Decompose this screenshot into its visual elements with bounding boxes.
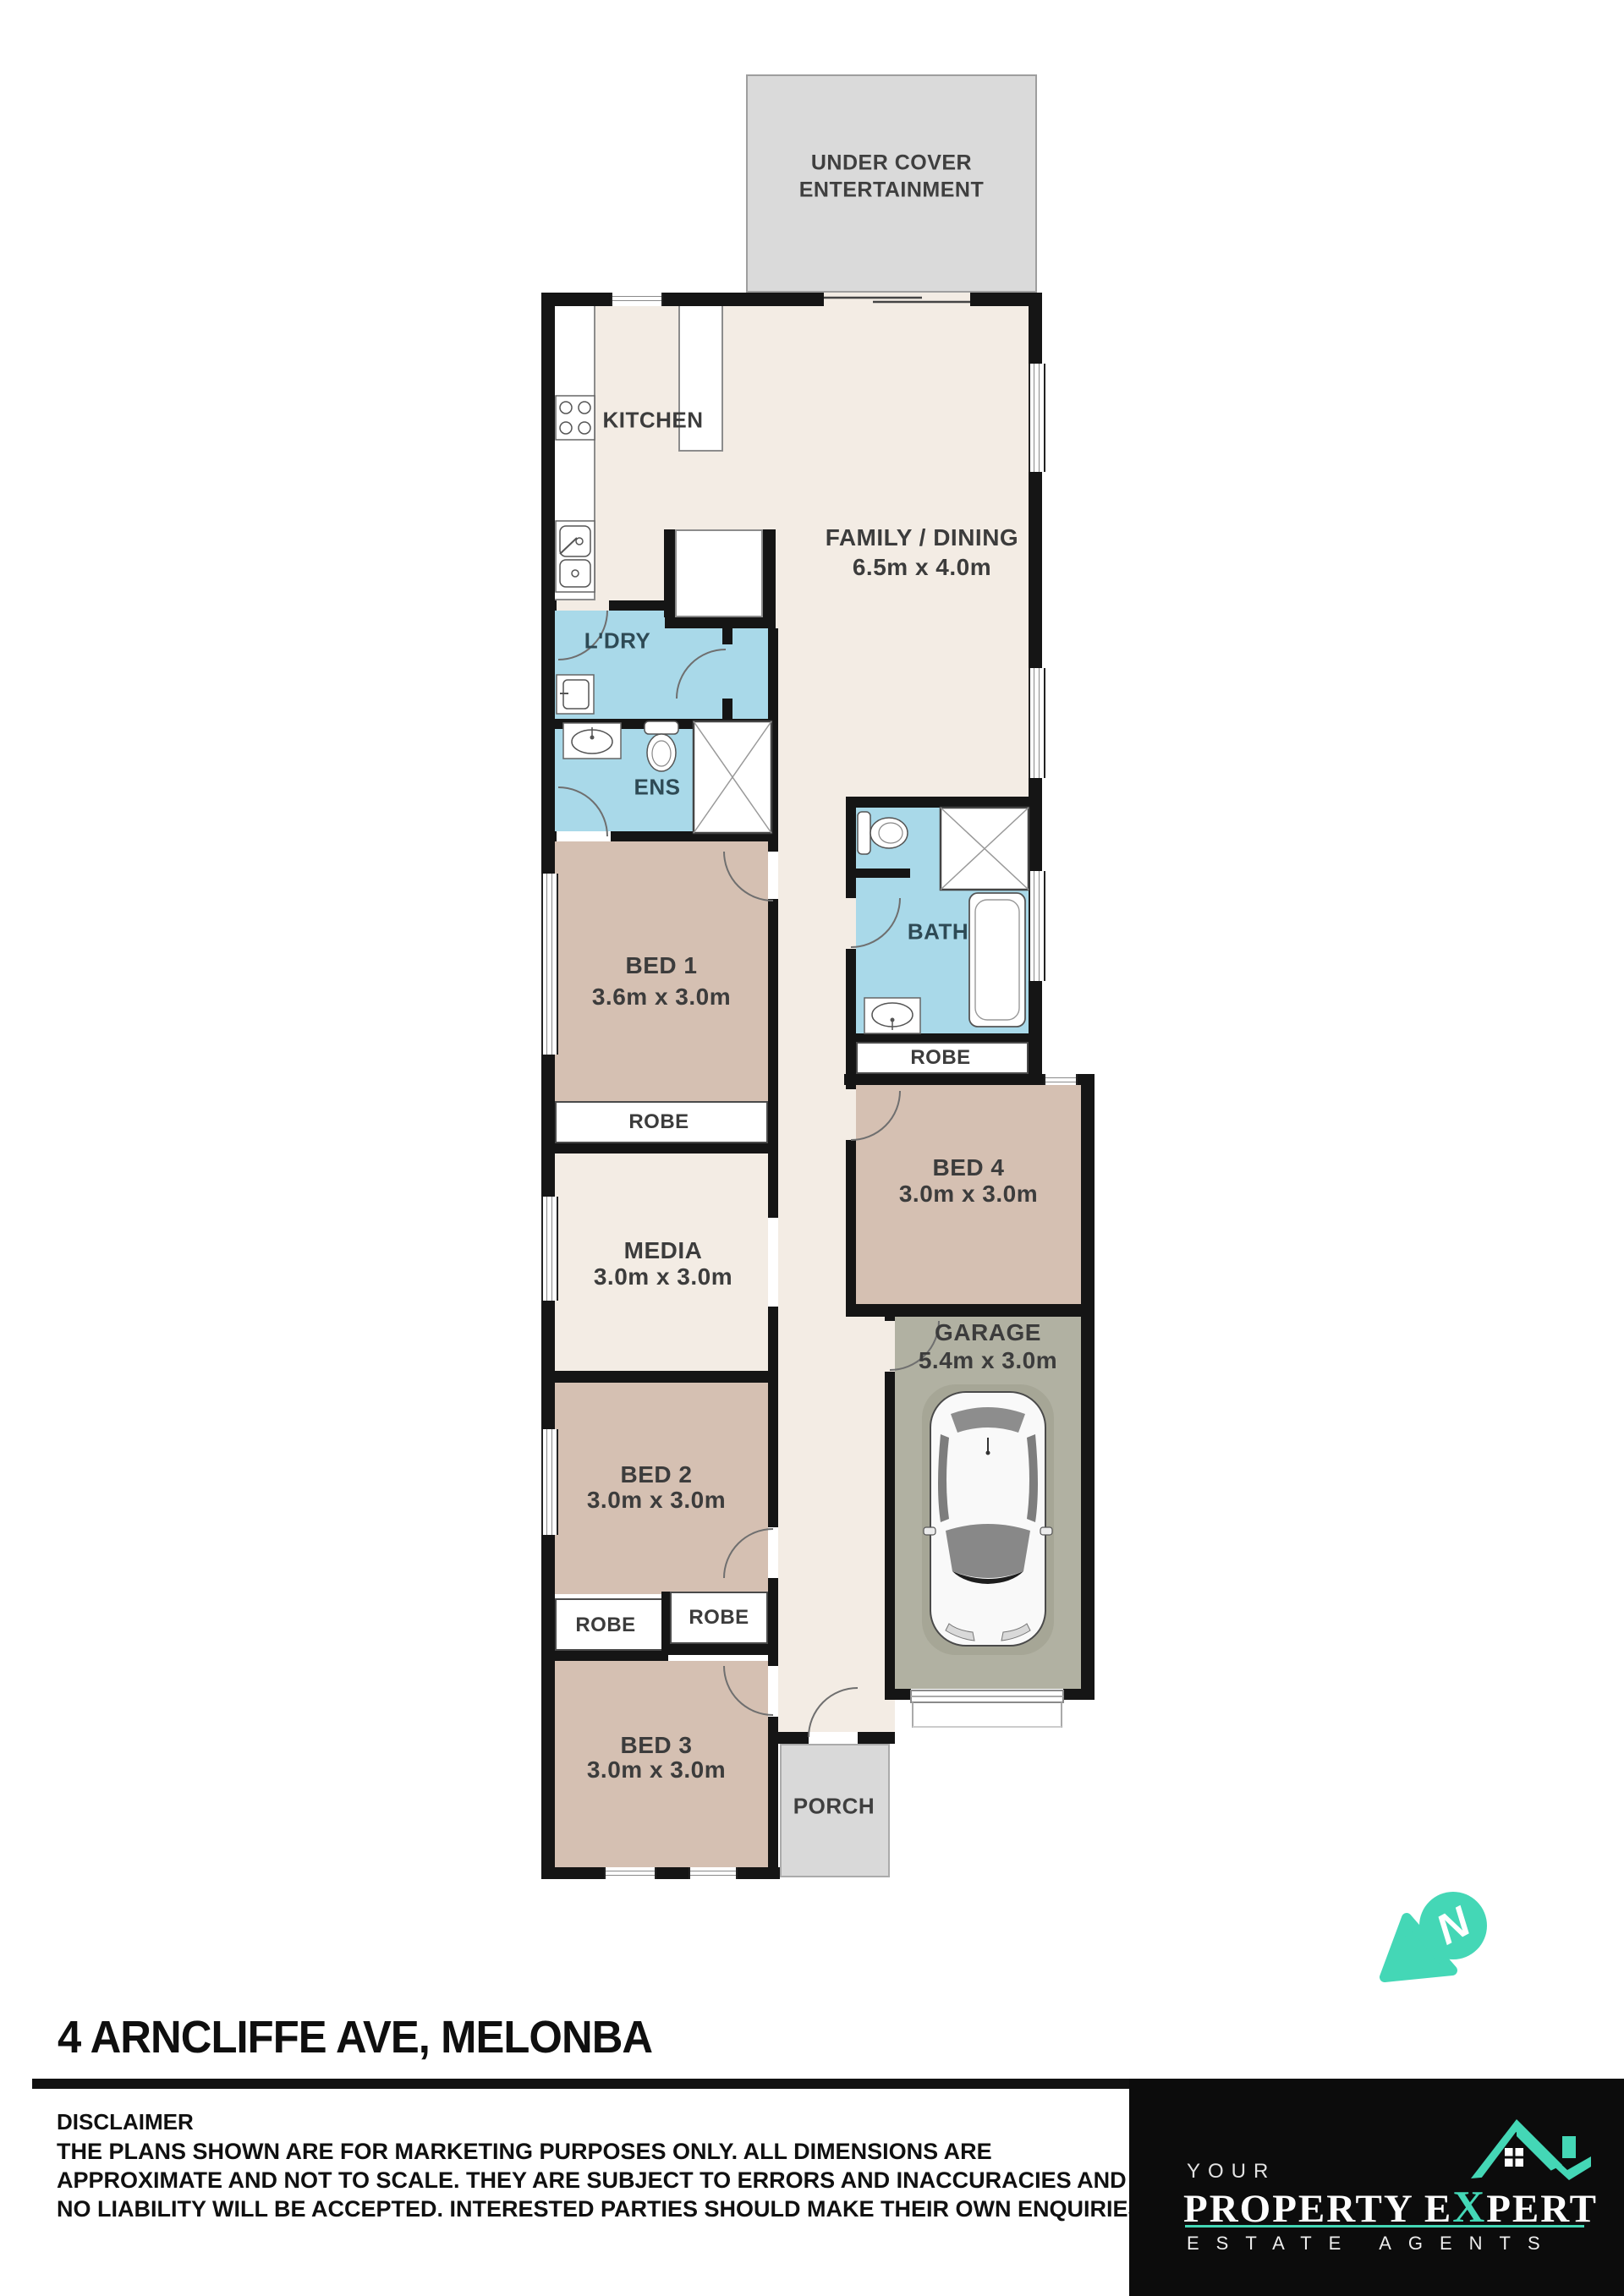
bathtub-icon <box>969 893 1025 1027</box>
ensuite-label: ENS <box>634 775 681 801</box>
bath-vanity-icon <box>864 998 920 1033</box>
address-title: 4 ARNCLIFFE AVE, MELONBA <box>58 2011 652 2063</box>
washing-machine-icon <box>557 675 594 714</box>
bed3-dims: 3.0m x 3.0m <box>587 1756 726 1784</box>
north-compass-icon: N <box>1385 1892 1487 1977</box>
ensuite-toilet-icon <box>645 721 678 771</box>
ensuite-shower-icon <box>694 721 771 833</box>
bath-label: BATH <box>908 919 968 945</box>
family-dims: 6.5m x 4.0m <box>853 554 991 581</box>
bed4-label: BED 4 <box>933 1154 1005 1181</box>
robe-bed2-left-label: ROBE <box>575 1614 635 1637</box>
bed4-dims: 3.0m x 3.0m <box>899 1181 1038 1208</box>
bed2-label: BED 2 <box>621 1461 693 1488</box>
logo-divider-line <box>1185 2225 1584 2228</box>
entertainment-label2: ENTERTAINMENT <box>799 178 985 203</box>
bath-toilet-icon <box>858 812 908 854</box>
robe-bath-label: ROBE <box>910 1046 970 1070</box>
floorplan-page: N UNDER COVER ENTERTAINMENT KITCHEN FAMI… <box>0 0 1624 2296</box>
family-label: FAMILY / DINING <box>826 524 1018 551</box>
plan-fixtures-overlay: N <box>0 0 1624 2296</box>
disclaimer-heading: DISCLAIMER <box>57 2109 194 2135</box>
robe-bed2-right-label: ROBE <box>689 1606 749 1630</box>
disclaimer-line1: THE PLANS SHOWN ARE FOR MARKETING PURPOS… <box>57 2139 992 2165</box>
double-sink-icon <box>556 521 595 592</box>
media-dims: 3.0m x 3.0m <box>594 1263 732 1290</box>
kitchen-label: KITCHEN <box>602 408 703 434</box>
robe-bed1-label: ROBE <box>628 1110 689 1134</box>
agency-logo: YOUR PROPERTY EXPERT ESTATE AGENTS <box>1129 2079 1624 2296</box>
house-roof-icon <box>1468 2111 1594 2185</box>
media-label: MEDIA <box>624 1237 703 1264</box>
disclaimer-line3: NO LIABILITY WILL BE ACCEPTED. INTERESTE… <box>57 2196 1149 2222</box>
bed1-label: BED 1 <box>626 952 698 979</box>
garage-label: GARAGE <box>935 1319 1041 1346</box>
ensuite-vanity-icon <box>563 723 621 759</box>
bed2-dims: 3.0m x 3.0m <box>587 1487 726 1514</box>
porch-label: PORCH <box>793 1794 875 1820</box>
logo-word-estate-agents: ESTATE AGENTS <box>1187 2233 1557 2255</box>
garage-dims: 5.4m x 3.0m <box>919 1347 1057 1374</box>
stove-cooktop-icon <box>556 396 595 440</box>
bed1-dims: 3.6m x 3.0m <box>592 984 731 1011</box>
disclaimer-line2: APPROXIMATE AND NOT TO SCALE. THEY ARE S… <box>57 2167 1127 2194</box>
laundry-label: L'DRY <box>584 628 651 655</box>
logo-word-your: YOUR <box>1187 2160 1276 2184</box>
bed3-label: BED 3 <box>621 1732 693 1759</box>
car-top-view-icon <box>922 1384 1054 1655</box>
entertainment-label: UNDER COVER <box>811 151 972 176</box>
bath-shower-icon <box>941 808 1029 890</box>
garage-door <box>911 1690 1063 1728</box>
